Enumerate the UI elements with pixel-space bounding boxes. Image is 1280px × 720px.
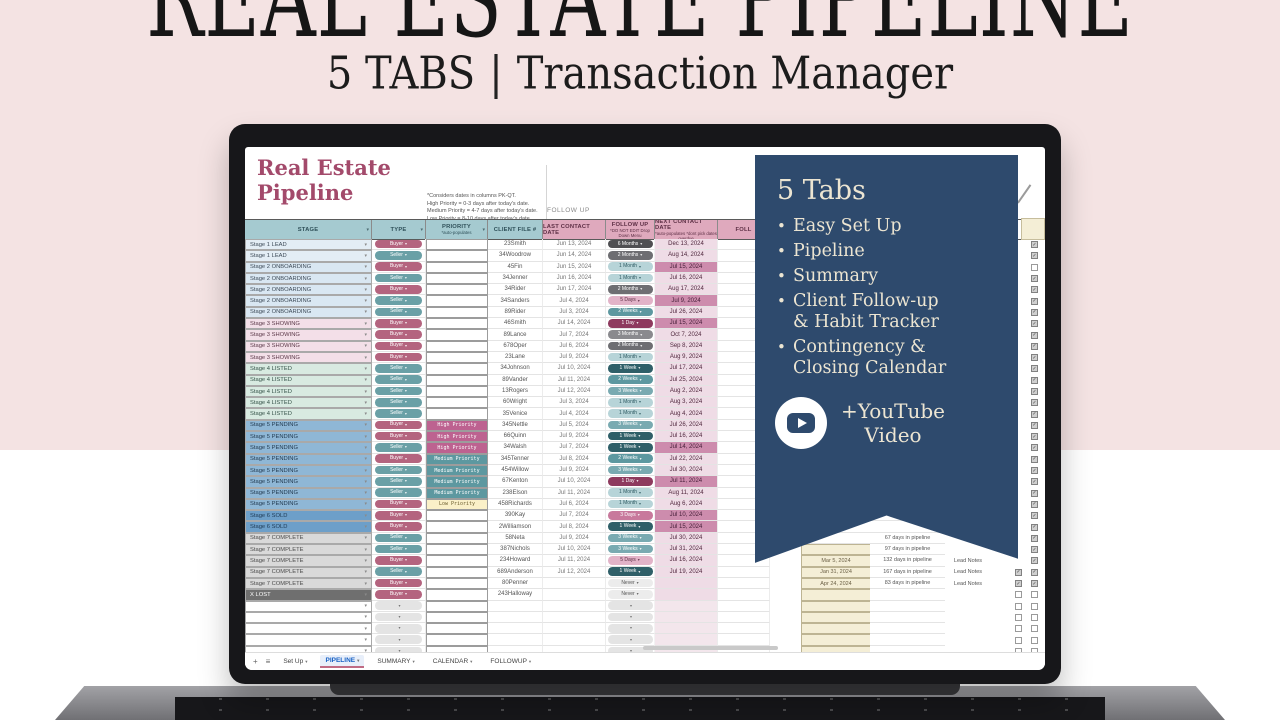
- type-cell[interactable]: ▾: [372, 601, 426, 612]
- last-contact-date-cell[interactable]: Jul 4, 2024: [543, 408, 606, 419]
- type-cell[interactable]: Seller▾: [372, 476, 426, 487]
- tab-dropdown-arrow-icon[interactable]: ▾: [529, 659, 531, 665]
- row-checkbox[interactable]: ✓: [1031, 535, 1038, 542]
- follow-up-cell[interactable]: 2 Weeks▾: [606, 454, 655, 465]
- pipeline-date-cell[interactable]: Mar 5, 2024: [801, 555, 870, 566]
- type-pill[interactable]: Buyer▾: [375, 285, 422, 294]
- stage-cell[interactable]: ▾: [245, 623, 372, 634]
- type-cell[interactable]: Seller▾: [372, 295, 426, 306]
- stage-cell[interactable]: Stage 5 PENDING▾: [245, 499, 372, 510]
- type-pill[interactable]: ▾: [375, 635, 422, 644]
- client-file-cell[interactable]: 34Sanders: [488, 295, 543, 306]
- type-cell[interactable]: Seller▾: [372, 465, 426, 476]
- row-checkbox[interactable]: ✓: [1015, 580, 1022, 587]
- stage-cell[interactable]: Stage 3 SHOWING▾: [245, 352, 372, 363]
- last-contact-date-cell[interactable]: Jun 15, 2024: [543, 262, 606, 273]
- follow-up-cell[interactable]: 1 Month▾: [606, 352, 655, 363]
- row-checkbox[interactable]: [1031, 637, 1038, 644]
- follow-up-pill[interactable]: 2 Months▾: [608, 251, 653, 260]
- client-file-cell[interactable]: 34Walsh: [488, 442, 543, 453]
- row-checkbox[interactable]: [1031, 591, 1038, 598]
- stage-cell[interactable]: Stage 7 COMPLETE▾: [245, 555, 372, 566]
- row-checkbox[interactable]: ✓: [1031, 320, 1038, 327]
- client-file-cell[interactable]: 2Williamson: [488, 521, 543, 532]
- client-file-cell[interactable]: 35Venice: [488, 408, 543, 419]
- type-cell[interactable]: Buyer▾: [372, 510, 426, 521]
- stage-cell[interactable]: Stage 2 ONBOARDING▾: [245, 295, 372, 306]
- row-checkbox[interactable]: ✓: [1031, 343, 1038, 350]
- last-contact-date-cell[interactable]: Jul 8, 2024: [543, 454, 606, 465]
- row-checkbox[interactable]: [1015, 637, 1022, 644]
- client-file-cell[interactable]: 60Wright: [488, 397, 543, 408]
- add-sheet-button[interactable]: +: [253, 657, 258, 666]
- lead-notes-cell[interactable]: [945, 589, 991, 600]
- lead-notes-cell[interactable]: [945, 612, 991, 623]
- stage-cell[interactable]: Stage 2 ONBOARDING▾: [245, 273, 372, 284]
- type-cell[interactable]: Buyer▾: [372, 352, 426, 363]
- follow-up-cell[interactable]: 2 Months▾: [606, 341, 655, 352]
- pipeline-date-cell[interactable]: [801, 634, 870, 645]
- follow-up-pill[interactable]: 3 Days▾: [608, 511, 653, 520]
- client-file-cell[interactable]: 67Kenton: [488, 476, 543, 487]
- follow-up-pill[interactable]: ▾: [608, 613, 653, 622]
- type-cell[interactable]: Seller▾: [372, 408, 426, 419]
- follow-up-cell[interactable]: 2 Months▾: [606, 284, 655, 295]
- tab-calendar[interactable]: CALENDAR▾: [428, 656, 478, 667]
- row-checkbox[interactable]: ✓: [1031, 580, 1038, 587]
- column-header-type[interactable]: TYPE▾: [372, 220, 426, 239]
- sort-arrow-icon[interactable]: ▾: [420, 227, 423, 233]
- row-checkbox[interactable]: ✓: [1031, 422, 1038, 429]
- type-cell[interactable]: Seller▾: [372, 544, 426, 555]
- row-checkbox[interactable]: ✓: [1015, 569, 1022, 576]
- client-file-cell[interactable]: [488, 612, 543, 623]
- column-header-follow-up[interactable]: FOLLOW UP*DO NOT EDIT Drop Down Menu: [606, 220, 655, 239]
- type-pill[interactable]: Seller▾: [375, 545, 422, 554]
- follow-up-pill[interactable]: 1 Month▾: [608, 353, 653, 362]
- row-checkbox[interactable]: ✓: [1031, 512, 1038, 519]
- row-checkbox[interactable]: [1015, 614, 1022, 621]
- type-pill[interactable]: ▾: [375, 613, 422, 622]
- type-cell[interactable]: Buyer▾: [372, 431, 426, 442]
- row-checkbox[interactable]: ✓: [1031, 569, 1038, 576]
- pipeline-date-cell[interactable]: [801, 544, 870, 555]
- client-file-cell[interactable]: 34Woodrow: [488, 250, 543, 261]
- client-file-cell[interactable]: 46Smith: [488, 318, 543, 329]
- client-file-cell[interactable]: 34Jenner: [488, 273, 543, 284]
- follow-up-cell[interactable]: 1 Month▾: [606, 397, 655, 408]
- follow-up-pill[interactable]: 2 Months▾: [608, 342, 653, 351]
- last-contact-date-cell[interactable]: [543, 589, 606, 600]
- tab-dropdown-arrow-icon[interactable]: ▾: [305, 659, 307, 665]
- type-pill[interactable]: Seller▾: [375, 409, 422, 418]
- type-cell[interactable]: Buyer▾: [372, 341, 426, 352]
- pipeline-date-cell[interactable]: [801, 601, 870, 612]
- pipeline-date-cell[interactable]: [801, 589, 870, 600]
- client-file-cell[interactable]: 458Richards: [488, 499, 543, 510]
- stage-cell[interactable]: Stage 5 PENDING▾: [245, 488, 372, 499]
- row-checkbox[interactable]: ✓: [1031, 456, 1038, 463]
- follow-up-cell[interactable]: ▾: [606, 634, 655, 645]
- lead-notes-cell[interactable]: [945, 601, 991, 612]
- last-contact-date-cell[interactable]: Jul 12, 2024: [543, 386, 606, 397]
- type-cell[interactable]: Buyer▾: [372, 555, 426, 566]
- row-checkbox[interactable]: ✓: [1031, 546, 1038, 553]
- last-contact-date-cell[interactable]: Jul 10, 2024: [543, 476, 606, 487]
- last-contact-date-cell[interactable]: [543, 623, 606, 634]
- row-checkbox[interactable]: [1015, 603, 1022, 610]
- last-contact-date-cell[interactable]: Jul 4, 2024: [543, 295, 606, 306]
- row-checkbox[interactable]: ✓: [1031, 557, 1038, 564]
- type-pill[interactable]: Seller▾: [375, 251, 422, 260]
- type-cell[interactable]: Seller▾: [372, 533, 426, 544]
- client-file-cell[interactable]: 58Neta: [488, 533, 543, 544]
- follow-up-pill[interactable]: ▾: [608, 635, 653, 644]
- last-contact-date-cell[interactable]: Jul 12, 2024: [543, 567, 606, 578]
- type-pill[interactable]: Buyer▾: [375, 590, 422, 599]
- last-contact-date-cell[interactable]: Jul 6, 2024: [543, 499, 606, 510]
- column-header-next-contact-date[interactable]: NEXT CONTACT DATE*auto-populates *dont p…: [655, 220, 718, 239]
- follow-up-pill[interactable]: ▾: [608, 601, 653, 610]
- last-contact-date-cell[interactable]: Jul 3, 2024: [543, 307, 606, 318]
- follow-up-pill[interactable]: 3 Weeks▾: [608, 545, 653, 554]
- last-contact-date-cell[interactable]: Jul 11, 2024: [543, 488, 606, 499]
- stage-cell[interactable]: Stage 4 LISTED▾: [245, 386, 372, 397]
- row-checkbox[interactable]: [1015, 625, 1022, 632]
- type-cell[interactable]: Buyer▾: [372, 329, 426, 340]
- type-pill[interactable]: Buyer▾: [375, 511, 422, 520]
- stage-cell[interactable]: Stage 5 PENDING▾: [245, 431, 372, 442]
- follow-up-cell[interactable]: 1 Day▾: [606, 476, 655, 487]
- last-contact-date-cell[interactable]: Jul 9, 2024: [543, 352, 606, 363]
- stage-cell[interactable]: Stage 6 SOLD▾: [245, 521, 372, 532]
- row-checkbox[interactable]: ✓: [1031, 354, 1038, 361]
- type-pill[interactable]: Buyer▾: [375, 500, 422, 509]
- client-file-cell[interactable]: 80Penner: [488, 578, 543, 589]
- follow-up-cell[interactable]: 1 Week▾: [606, 442, 655, 453]
- client-file-cell[interactable]: 243Halloway: [488, 589, 543, 600]
- row-checkbox[interactable]: ✓: [1031, 309, 1038, 316]
- client-file-cell[interactable]: 23Smith: [488, 239, 543, 250]
- follow-up-pill[interactable]: ▾: [608, 624, 653, 633]
- type-cell[interactable]: Buyer▾: [372, 284, 426, 295]
- follow-up-pill[interactable]: 5 Days▾: [608, 296, 653, 305]
- last-contact-date-cell[interactable]: Jul 9, 2024: [543, 465, 606, 476]
- type-pill[interactable]: Buyer▾: [375, 432, 422, 441]
- stage-cell[interactable]: Stage 3 SHOWING▾: [245, 318, 372, 329]
- follow-up-cell[interactable]: ▾: [606, 623, 655, 634]
- follow-up-pill[interactable]: 3 Weeks▾: [608, 534, 653, 543]
- horizontal-scrollbar[interactable]: [643, 646, 778, 650]
- stage-cell[interactable]: Stage 2 ONBOARDING▾: [245, 262, 372, 273]
- row-checkbox[interactable]: ✓: [1031, 365, 1038, 372]
- stage-cell[interactable]: Stage 1 LEAD▾: [245, 250, 372, 261]
- follow-up-pill[interactable]: 3 Weeks▾: [608, 421, 653, 430]
- follow-up-cell[interactable]: 3 Weeks▾: [606, 544, 655, 555]
- lead-notes-cell[interactable]: Lead Notes: [945, 578, 991, 589]
- follow-up-cell[interactable]: 1 Month▾: [606, 488, 655, 499]
- stage-cell[interactable]: Stage 7 COMPLETE▾: [245, 567, 372, 578]
- row-checkbox[interactable]: ✓: [1031, 332, 1038, 339]
- follow-up-cell[interactable]: 5 Days▾: [606, 295, 655, 306]
- sort-arrow-icon[interactable]: ▾: [366, 227, 369, 233]
- pipeline-date-cell[interactable]: Jan 31, 2024: [801, 567, 870, 578]
- type-pill[interactable]: Seller▾: [375, 534, 422, 543]
- type-pill[interactable]: Buyer▾: [375, 579, 422, 588]
- type-pill[interactable]: Seller▾: [375, 274, 422, 283]
- follow-up-cell[interactable]: 2 Weeks▾: [606, 307, 655, 318]
- sort-arrow-icon[interactable]: ▾: [482, 227, 485, 233]
- tab-followup[interactable]: FOLLOWUP▾: [485, 656, 536, 667]
- type-pill[interactable]: Buyer▾: [375, 522, 422, 531]
- client-file-cell[interactable]: [488, 601, 543, 612]
- type-pill[interactable]: Seller▾: [375, 567, 422, 576]
- type-pill[interactable]: Buyer▾: [375, 330, 422, 339]
- type-pill[interactable]: Buyer▾: [375, 342, 422, 351]
- row-checkbox[interactable]: ✓: [1031, 399, 1038, 406]
- type-pill[interactable]: Seller▾: [375, 398, 422, 407]
- type-cell[interactable]: Seller▾: [372, 363, 426, 374]
- stage-cell[interactable]: Stage 5 PENDING▾: [245, 476, 372, 487]
- last-contact-date-cell[interactable]: Jul 8, 2024: [543, 521, 606, 532]
- row-checkbox[interactable]: ✓: [1031, 252, 1038, 259]
- follow-up-cell[interactable]: ▾: [606, 612, 655, 623]
- last-contact-date-cell[interactable]: Jul 10, 2024: [543, 544, 606, 555]
- column-header-priority[interactable]: PRIORITY*auto-populates▾: [426, 220, 488, 239]
- follow-up-cell[interactable]: 2 Months▾: [606, 250, 655, 261]
- tab-dropdown-arrow-icon[interactable]: ▾: [470, 659, 472, 665]
- last-contact-date-cell[interactable]: [543, 612, 606, 623]
- last-contact-date-cell[interactable]: [543, 578, 606, 589]
- tab-dropdown-arrow-icon[interactable]: ▾: [412, 659, 414, 665]
- last-contact-date-cell[interactable]: Jul 6, 2024: [543, 341, 606, 352]
- type-cell[interactable]: Buyer▾: [372, 318, 426, 329]
- type-pill[interactable]: Seller▾: [375, 387, 422, 396]
- row-checkbox[interactable]: ✓: [1031, 524, 1038, 531]
- last-contact-date-cell[interactable]: Jun 13, 2024: [543, 239, 606, 250]
- type-pill[interactable]: Buyer▾: [375, 319, 422, 328]
- row-checkbox[interactable]: ✓: [1031, 478, 1038, 485]
- type-cell[interactable]: Seller▾: [372, 397, 426, 408]
- tab-dropdown-arrow-icon[interactable]: ▾: [357, 658, 359, 664]
- follow-up-pill[interactable]: 1 Week▾: [608, 522, 653, 531]
- follow-up-cell[interactable]: 3 Weeks▾: [606, 465, 655, 476]
- row-checkbox[interactable]: [1031, 264, 1038, 271]
- follow-up-cell[interactable]: ▾: [606, 601, 655, 612]
- type-cell[interactable]: ▾: [372, 623, 426, 634]
- follow-up-pill[interactable]: 2 Weeks▾: [608, 308, 653, 317]
- follow-up-pill[interactable]: Never▾: [608, 579, 653, 588]
- stage-cell[interactable]: X LOST▾: [245, 589, 372, 600]
- last-contact-date-cell[interactable]: [543, 601, 606, 612]
- type-cell[interactable]: Seller▾: [372, 488, 426, 499]
- follow-up-pill[interactable]: 1 Day▾: [608, 319, 653, 328]
- stage-cell[interactable]: Stage 4 LISTED▾: [245, 375, 372, 386]
- lead-notes-cell[interactable]: Lead Notes: [945, 555, 991, 566]
- row-checkbox[interactable]: ✓: [1031, 388, 1038, 395]
- type-pill[interactable]: Seller▾: [375, 375, 422, 384]
- row-checkbox[interactable]: ✓: [1031, 433, 1038, 440]
- client-file-cell[interactable]: 390Kay: [488, 510, 543, 521]
- follow-up-cell[interactable]: 1 Month▾: [606, 273, 655, 284]
- follow-up-cell[interactable]: 6 Months▾: [606, 239, 655, 250]
- follow-up-pill[interactable]: 1 Week▾: [608, 443, 653, 452]
- type-cell[interactable]: Buyer▾: [372, 521, 426, 532]
- stage-cell[interactable]: Stage 5 PENDING▾: [245, 420, 372, 431]
- client-file-cell[interactable]: 387Nichols: [488, 544, 543, 555]
- follow-up-cell[interactable]: 3 Weeks▾: [606, 533, 655, 544]
- follow-up-pill[interactable]: 2 Weeks▾: [608, 375, 653, 384]
- type-pill[interactable]: Buyer▾: [375, 421, 422, 430]
- column-header-stage[interactable]: STAGE▾: [245, 220, 372, 239]
- last-contact-date-cell[interactable]: Jul 7, 2024: [543, 442, 606, 453]
- type-cell[interactable]: Seller▾: [372, 250, 426, 261]
- follow-up-cell[interactable]: 1 Week▾: [606, 567, 655, 578]
- type-cell[interactable]: Buyer▾: [372, 454, 426, 465]
- row-checkbox[interactable]: ✓: [1031, 501, 1038, 508]
- follow-up-cell[interactable]: 1 Month▾: [606, 499, 655, 510]
- last-contact-date-cell[interactable]: Jul 11, 2024: [543, 555, 606, 566]
- type-pill[interactable]: ▾: [375, 624, 422, 633]
- follow-up-cell[interactable]: 2 Weeks▾: [606, 375, 655, 386]
- follow-up-pill[interactable]: 1 Day▾: [608, 477, 653, 486]
- all-sheets-menu-button[interactable]: ≡: [266, 657, 271, 666]
- lead-notes-cell[interactable]: [945, 634, 991, 645]
- pipeline-date-cell[interactable]: [801, 623, 870, 634]
- follow-up-pill[interactable]: 3 Months▾: [608, 330, 653, 339]
- stage-cell[interactable]: Stage 4 LISTED▾: [245, 408, 372, 419]
- row-checkbox[interactable]: [1031, 603, 1038, 610]
- client-file-cell[interactable]: 238Elson: [488, 488, 543, 499]
- follow-up-pill[interactable]: 1 Month▾: [608, 500, 653, 509]
- last-contact-date-cell[interactable]: Jul 11, 2024: [543, 375, 606, 386]
- follow-up-cell[interactable]: 1 Week▾: [606, 431, 655, 442]
- client-file-cell[interactable]: 454Willow: [488, 465, 543, 476]
- client-file-cell[interactable]: 345Nettle: [488, 420, 543, 431]
- type-pill[interactable]: Seller▾: [375, 308, 422, 317]
- follow-up-cell[interactable]: 1 Week▾: [606, 521, 655, 532]
- stage-cell[interactable]: Stage 4 LISTED▾: [245, 397, 372, 408]
- tab-pipeline[interactable]: PIPELINE▾: [320, 655, 364, 668]
- type-cell[interactable]: Seller▾: [372, 386, 426, 397]
- stage-cell[interactable]: Stage 1 LEAD▾: [245, 239, 372, 250]
- follow-up-cell[interactable]: 3 Days▾: [606, 510, 655, 521]
- client-file-cell[interactable]: 89Lance: [488, 329, 543, 340]
- type-pill[interactable]: Seller▾: [375, 466, 422, 475]
- type-cell[interactable]: Seller▾: [372, 273, 426, 284]
- follow-up-pill[interactable]: 1 Week▾: [608, 364, 653, 373]
- stage-cell[interactable]: Stage 5 PENDING▾: [245, 465, 372, 476]
- row-checkbox[interactable]: ✓: [1031, 241, 1038, 248]
- follow-up-cell[interactable]: 1 Day▾: [606, 318, 655, 329]
- lead-notes-cell[interactable]: [945, 623, 991, 634]
- client-file-cell[interactable]: 66Quinn: [488, 431, 543, 442]
- stage-cell[interactable]: Stage 6 SOLD▾: [245, 510, 372, 521]
- client-file-cell[interactable]: 13Rogers: [488, 386, 543, 397]
- follow-up-cell[interactable]: 1 Week▾: [606, 363, 655, 374]
- follow-up-pill[interactable]: 5 Days▾: [608, 556, 653, 565]
- follow-up-pill[interactable]: 1 Week▾: [608, 432, 653, 441]
- client-file-cell[interactable]: [488, 623, 543, 634]
- row-checkbox[interactable]: ✓: [1031, 275, 1038, 282]
- lead-notes-cell[interactable]: Lead Notes: [945, 567, 991, 578]
- type-pill[interactable]: Buyer▾: [375, 454, 422, 463]
- type-cell[interactable]: Buyer▾: [372, 589, 426, 600]
- row-checkbox[interactable]: [1031, 625, 1038, 632]
- row-checkbox[interactable]: ✓: [1031, 377, 1038, 384]
- type-pill[interactable]: Seller▾: [375, 364, 422, 373]
- follow-up-pill[interactable]: 3 Weeks▾: [608, 387, 653, 396]
- type-cell[interactable]: Buyer▾: [372, 262, 426, 273]
- type-cell[interactable]: ▾: [372, 634, 426, 645]
- follow-up-pill[interactable]: Never▾: [608, 590, 653, 599]
- client-file-cell[interactable]: 45Fin: [488, 262, 543, 273]
- type-pill[interactable]: Buyer▾: [375, 556, 422, 565]
- row-checkbox[interactable]: ✓: [1031, 286, 1038, 293]
- follow-up-cell[interactable]: 3 Months▾: [606, 329, 655, 340]
- follow-up-pill[interactable]: 1 Month▾: [608, 274, 653, 283]
- follow-up-cell[interactable]: 3 Weeks▾: [606, 420, 655, 431]
- type-pill[interactable]: ▾: [375, 601, 422, 610]
- type-pill[interactable]: Seller▾: [375, 443, 422, 452]
- client-file-cell[interactable]: 34Johnson: [488, 363, 543, 374]
- type-cell[interactable]: Seller▾: [372, 307, 426, 318]
- row-checkbox[interactable]: [1015, 591, 1022, 598]
- last-contact-date-cell[interactable]: Jul 10, 2024: [543, 363, 606, 374]
- follow-up-pill[interactable]: 1 Month▾: [608, 488, 653, 497]
- row-checkbox[interactable]: ✓: [1031, 298, 1038, 305]
- last-contact-date-cell[interactable]: Jul 9, 2024: [543, 533, 606, 544]
- client-file-cell[interactable]: [488, 634, 543, 645]
- follow-up-cell[interactable]: 5 Days▾: [606, 555, 655, 566]
- type-cell[interactable]: Buyer▾: [372, 578, 426, 589]
- last-contact-date-cell[interactable]: Jun 14, 2024: [543, 250, 606, 261]
- follow-up-cell[interactable]: 1 Month▾: [606, 262, 655, 273]
- row-checkbox[interactable]: ✓: [1031, 490, 1038, 497]
- stage-cell[interactable]: Stage 7 COMPLETE▾: [245, 544, 372, 555]
- pipeline-date-cell[interactable]: [801, 612, 870, 623]
- follow-up-cell[interactable]: 1 Month▾: [606, 408, 655, 419]
- row-checkbox[interactable]: ✓: [1031, 444, 1038, 451]
- stage-cell[interactable]: Stage 4 LISTED▾: [245, 363, 372, 374]
- client-file-cell[interactable]: 678Oper: [488, 341, 543, 352]
- follow-up-cell[interactable]: Never▾: [606, 578, 655, 589]
- client-file-cell[interactable]: 89Vander: [488, 375, 543, 386]
- follow-up-pill[interactable]: 6 Months▾: [608, 240, 653, 249]
- follow-up-pill[interactable]: 1 Month▾: [608, 398, 653, 407]
- column-header-last-contact-date[interactable]: LAST CONTACT DATE: [543, 220, 606, 239]
- type-cell[interactable]: Seller▾: [372, 375, 426, 386]
- last-contact-date-cell[interactable]: Jul 14, 2024: [543, 318, 606, 329]
- client-file-cell[interactable]: 89Rider: [488, 307, 543, 318]
- tab-summary[interactable]: SUMMARY▾: [372, 656, 419, 667]
- follow-up-pill[interactable]: 1 Month▾: [608, 262, 653, 271]
- type-cell[interactable]: Seller▾: [372, 442, 426, 453]
- follow-up-pill[interactable]: 2 Weeks▾: [608, 454, 653, 463]
- type-pill[interactable]: Buyer▾: [375, 262, 422, 271]
- follow-up-pill[interactable]: 3 Weeks▾: [608, 466, 653, 475]
- client-file-cell[interactable]: 345Tenner: [488, 454, 543, 465]
- row-checkbox[interactable]: [1031, 614, 1038, 621]
- last-contact-date-cell[interactable]: Jul 7, 2024: [543, 329, 606, 340]
- follow-up-cell[interactable]: 3 Weeks▾: [606, 386, 655, 397]
- type-cell[interactable]: Buyer▾: [372, 420, 426, 431]
- type-cell[interactable]: Buyer▾: [372, 239, 426, 250]
- last-contact-date-cell[interactable]: [543, 634, 606, 645]
- stage-cell[interactable]: Stage 2 ONBOARDING▾: [245, 284, 372, 295]
- stage-cell[interactable]: Stage 3 SHOWING▾: [245, 329, 372, 340]
- type-cell[interactable]: Seller▾: [372, 567, 426, 578]
